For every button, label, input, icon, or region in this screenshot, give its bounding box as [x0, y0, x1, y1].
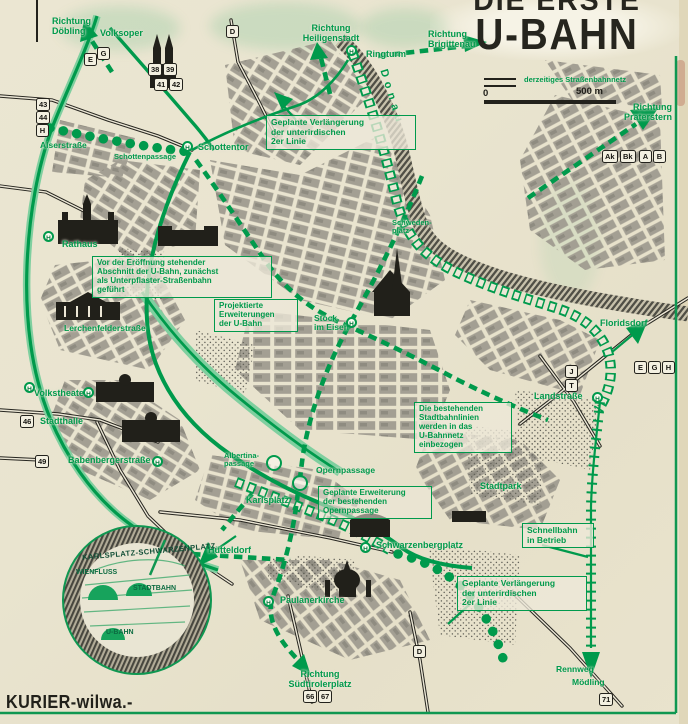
annotation-opernpassage-extension: Geplante Erweiterung der bestehenden Ope…: [318, 486, 432, 519]
station-marker: H: [83, 387, 94, 398]
tram-line-badge: 41: [154, 78, 168, 91]
tram-line-badge: 46: [20, 415, 34, 428]
tram-line-badge: G: [648, 361, 661, 374]
label-stadtpark: Stadtpark: [480, 482, 522, 492]
inset-label-wienfluss: WIENFLUSS: [76, 569, 117, 576]
newspaper-map-page: DIE ERSTE U-BAHN derzeitiges Straßenbahn…: [0, 0, 688, 724]
publisher-signature: KURIER-wilwa.-: [6, 692, 133, 713]
label-rennweg: Rennweg: [556, 665, 594, 674]
tram-line-badge: 42: [169, 78, 183, 91]
label-schwarzenbergplatz: Schwarzenbergplatz: [376, 541, 463, 551]
tram-line-badge: A: [639, 150, 652, 163]
label-karlsplatz: Karlsplatz: [246, 496, 289, 506]
tram-line-badge: 39: [163, 63, 177, 76]
label-volksoper: Volksoper: [100, 29, 143, 39]
label-stadthalle: Stadthalle: [40, 417, 83, 427]
tram-line-badge: E: [84, 53, 97, 66]
tram-line-badge: D: [226, 25, 239, 38]
label-volkstheater: Volkstheater: [34, 389, 87, 399]
tram-line-badge: 43: [36, 98, 50, 111]
label-babenbergerstrasse: Babenbergerstraße: [68, 456, 151, 466]
tram-line-badge: B: [653, 150, 666, 163]
inset-label-stadtbahn: STADTBAHN: [133, 585, 176, 592]
label-schottentor: Schottentor: [198, 143, 249, 153]
annotation-schnellbahn-in-betrieb: Schnellbahn in Betrieb: [522, 523, 594, 548]
scale-zero: 0: [483, 88, 488, 99]
label-schottenpassage: Schottenpassage: [114, 153, 176, 161]
station-marker: H: [346, 45, 357, 56]
label-richtung-suedtirolerplatz: Richtung Südtirolerplatz: [282, 670, 358, 689]
label-floridsdorf: Floridsdorf: [600, 319, 648, 329]
label-stock-im-eisen: Stock im Eisen: [314, 314, 349, 332]
inset-label-ubahn: U-BAHN: [106, 629, 134, 636]
legend-tram-label: derzeitiges Straßenbahnnetz: [524, 76, 626, 84]
tram-line-badge: E: [634, 361, 647, 374]
scale-bar: [484, 100, 616, 104]
tram-line-badge: 71: [599, 693, 613, 706]
label-landstrasse: Landstraße: [534, 392, 583, 402]
label-lerchenfelderstrasse: Lerchenfelderstraße: [64, 324, 146, 333]
station-marker: H: [24, 382, 35, 393]
tram-line-badge: G: [97, 47, 110, 60]
label-schwedenplatz: Schweden- platz: [392, 219, 432, 235]
station-marker: H: [360, 542, 371, 553]
label-opernpassage: Opernpassage: [316, 466, 375, 475]
annotation-projected-extensions: Projektierte Erweiterungen der U-Bahn: [214, 299, 298, 332]
label-richtung-brigittenau: Richtung Brigittenau: [428, 30, 476, 49]
map-canvas: [0, 0, 688, 724]
palais-icon: [452, 511, 486, 522]
tram-line-badge: T: [565, 379, 578, 392]
station-marker: H: [263, 596, 274, 607]
station-marker: H: [592, 392, 603, 403]
tram-line-badge: H: [36, 124, 49, 137]
station-marker: H: [43, 231, 54, 242]
tram-line-badge: 44: [36, 111, 50, 124]
label-richtung-heiligenstadt: Richtung Heiligenstadt: [300, 24, 362, 43]
tram-line-badge: Ak: [602, 150, 618, 163]
tram-line-badge: J: [565, 365, 578, 378]
tram-line-badge: H: [662, 361, 675, 374]
tram-line-badge: D: [413, 645, 426, 658]
annotation-pre-opening: Vor der Eröffnung stehender Abschnitt de…: [92, 256, 272, 298]
tram-line-badge: Bk: [620, 150, 636, 163]
label-albertina-passage: Albertina- passage: [224, 452, 259, 468]
annotation-stadtbahn-integration: Die bestehenden Stadtbahnlinien werden i…: [414, 402, 512, 453]
label-paulanerkirche: Paulanerkirche: [280, 596, 345, 606]
label-richtung-praterstern: Richtung Praterstern: [614, 103, 672, 122]
page-title: U-BAHN: [461, 10, 653, 60]
label-alserstrasse: Alserstraße: [40, 141, 87, 150]
tram-line-legend-symbol: [484, 78, 516, 87]
tram-line-badge: 49: [35, 455, 49, 468]
museum-icon: [96, 374, 154, 402]
annotation-north-extension: Geplante Verlängerung der unterirdischen…: [266, 115, 416, 150]
scale-distance: 500 m: [576, 86, 603, 97]
label-rathaus: Rathaus: [62, 240, 98, 250]
tram-line-badge: 67: [318, 690, 332, 703]
station-marker: H: [152, 456, 163, 467]
label-ringturm: Ringturm: [366, 50, 406, 60]
annotation-south-extension: Geplante Verlängerung der unterirdischen…: [457, 576, 587, 611]
station-marker-large: [292, 475, 308, 491]
tram-line-badge: 66: [303, 690, 317, 703]
tram-line-badge: 38: [148, 63, 162, 76]
label-moedling: Mödling: [572, 678, 605, 687]
station-marker: H: [346, 317, 357, 328]
label-richtung-doebling: Richtung Döbling: [52, 17, 91, 36]
station-marker: H: [182, 141, 193, 152]
station-marker-large: [266, 455, 282, 471]
